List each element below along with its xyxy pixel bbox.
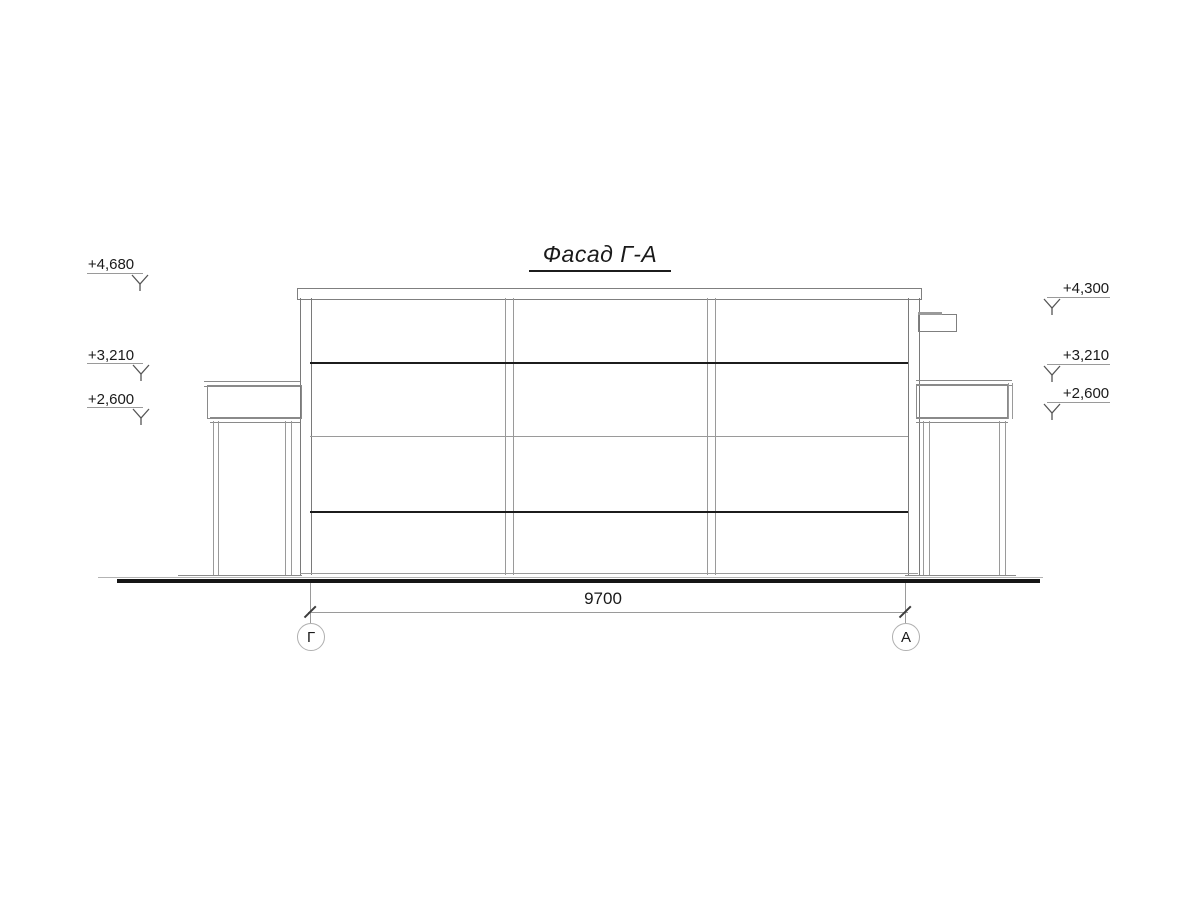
elevation-arrow-icon [1043, 298, 1061, 316]
dimension-line [308, 612, 908, 613]
left-canopy-post-2 [285, 421, 292, 575]
elevation-arrow-icon [132, 408, 150, 426]
dim-extension-right [905, 583, 906, 623]
roof-outlet-cap [918, 312, 942, 315]
facade-band-line-1 [310, 362, 908, 364]
facade-band-line-2 [310, 436, 908, 437]
elevation-value: +3,210 [80, 347, 142, 364]
elevation-value: +3,210 [1055, 347, 1117, 364]
roof-outlet-box [918, 314, 957, 332]
elevation-value: +4,300 [1055, 280, 1117, 297]
facade-column-right [908, 298, 920, 575]
elevation-arrow-icon [132, 364, 150, 382]
right-canopy-edge [1008, 383, 1013, 419]
elevation-value: +4,680 [80, 256, 142, 273]
left-canopy-post-1 [213, 421, 219, 575]
axis-label-g: Г [307, 629, 315, 646]
facade-base-line [300, 573, 918, 574]
left-canopy-fascia [207, 385, 302, 419]
ground-line [117, 579, 1040, 583]
elevation-arrow-icon [131, 274, 149, 292]
ground-line-thin [98, 577, 1043, 578]
right-canopy-post-1 [923, 421, 930, 575]
axis-bubble-g: Г [297, 623, 325, 651]
elevation-value: +2,600 [1055, 385, 1117, 402]
facade-band-line-3 [310, 511, 908, 513]
dim-extension-left [310, 583, 311, 623]
right-canopy-post-2 [999, 421, 1006, 575]
right-canopy-fascia [916, 384, 1008, 419]
facade-drawing-sheet: Фасад Г-А 9700 Г А +4,680 +3,210 [0, 0, 1200, 900]
facade-parapet [297, 288, 922, 300]
axis-label-a: А [901, 629, 911, 646]
elevation-arrow-icon [1043, 403, 1061, 421]
drawing-title: Фасад Г-А [529, 241, 671, 272]
axis-bubble-a: А [892, 623, 920, 651]
elevation-value: +2,600 [80, 391, 142, 408]
elevation-arrow-icon [1043, 365, 1061, 383]
dimension-value: 9700 [565, 589, 641, 609]
